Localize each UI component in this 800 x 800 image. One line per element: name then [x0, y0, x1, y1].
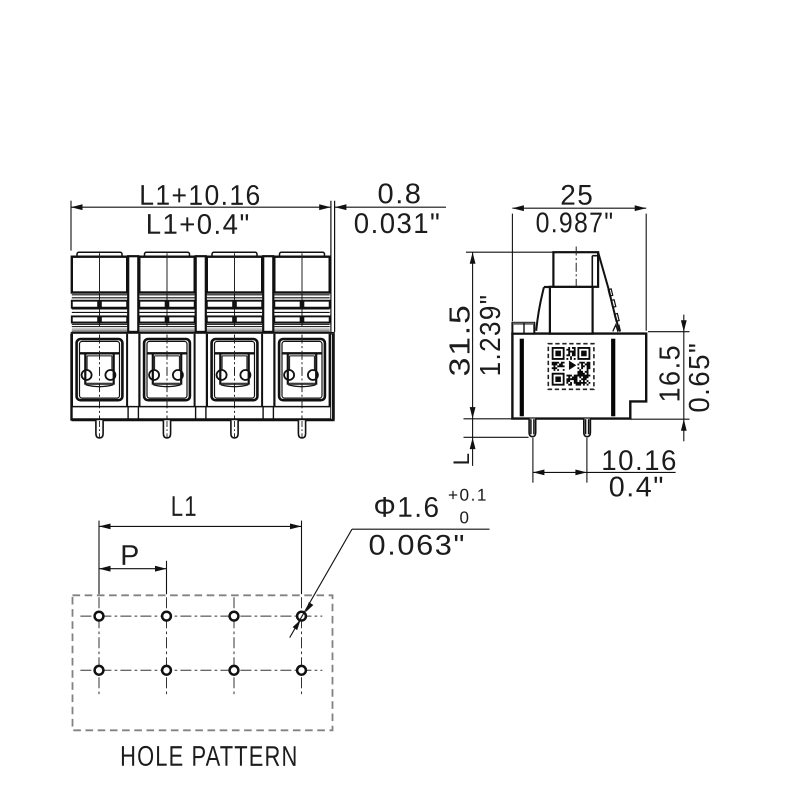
svg-text:16.5: 16.5	[655, 344, 687, 403]
svg-text:L1+0.4": L1+0.4"	[146, 209, 251, 241]
svg-text:0.8: 0.8	[377, 178, 422, 210]
svg-text:P: P	[120, 540, 141, 572]
svg-text:+0.1: +0.1	[448, 486, 488, 505]
svg-text:31.5: 31.5	[444, 303, 476, 376]
svg-text:0.031": 0.031"	[354, 208, 442, 240]
svg-text:0.4": 0.4"	[609, 471, 665, 503]
svg-text:L1: L1	[171, 491, 198, 523]
svg-text:0: 0	[459, 508, 470, 527]
svg-text:0.987": 0.987"	[536, 207, 615, 239]
svg-text:0.063": 0.063"	[368, 530, 466, 562]
svg-text:1.239": 1.239"	[475, 294, 507, 377]
svg-text:0.65": 0.65"	[684, 342, 716, 413]
svg-text:L: L	[449, 452, 474, 466]
svg-text:L1+10.16: L1+10.16	[139, 180, 262, 212]
svg-text:Φ1.6: Φ1.6	[373, 492, 440, 524]
svg-text:HOLE PATTERN: HOLE PATTERN	[120, 741, 298, 773]
